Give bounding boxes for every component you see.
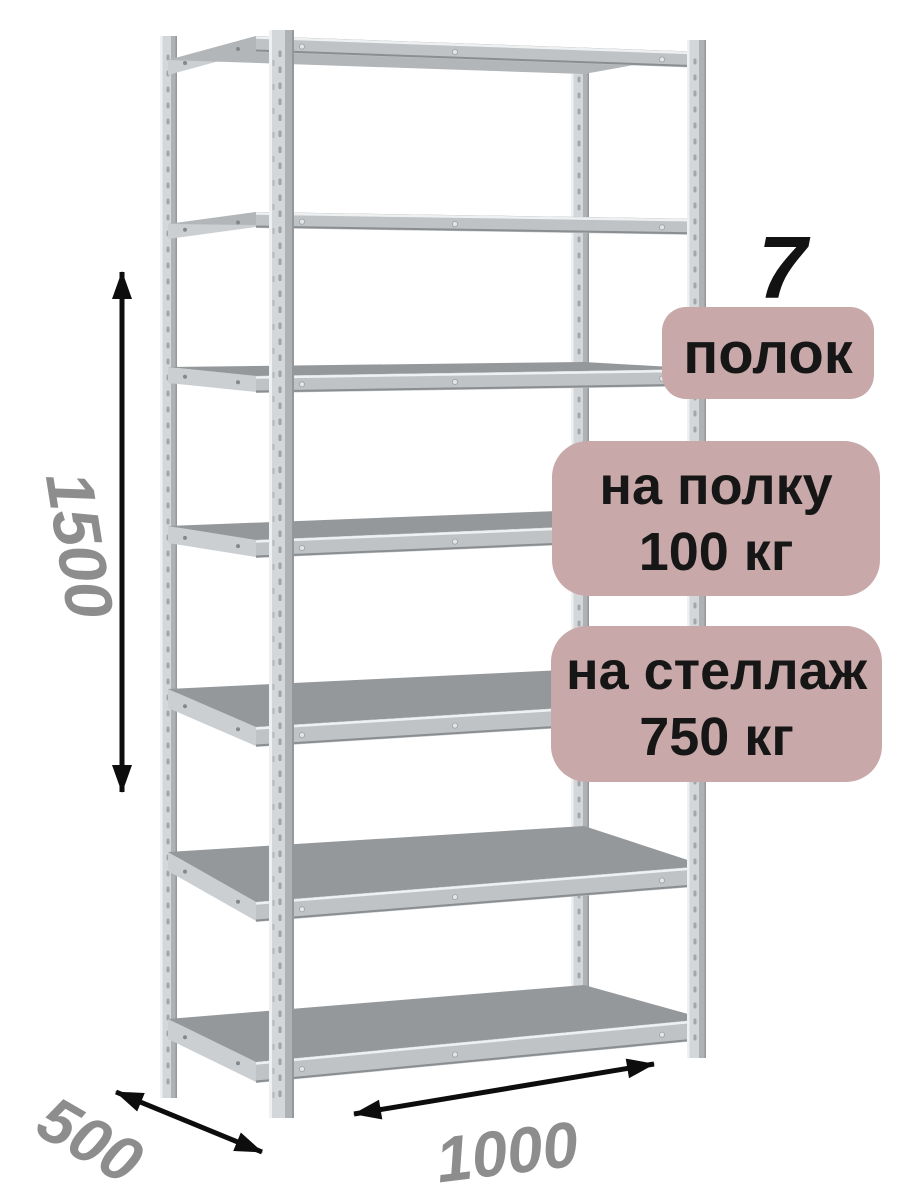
per-rack-load-line1: на стеллаж xyxy=(566,638,867,704)
shelves-count-label: полок xyxy=(683,320,853,387)
per-rack-load-badge: на стеллаж 750 кг xyxy=(551,626,882,782)
shelves-count-number: 7 xyxy=(720,220,845,315)
per-shelf-load-badge: на полку 100 кг xyxy=(552,441,880,596)
per-rack-load-line2: 750 кг xyxy=(639,704,794,770)
rack-shelf xyxy=(168,212,706,239)
per-shelf-load-line1: на полку xyxy=(599,453,832,519)
rack-post-front-left xyxy=(269,30,294,1118)
product-image: 7 полок на полку 100 кг на стеллаж 750 к… xyxy=(0,0,900,1200)
shelves-count-badge: полок xyxy=(662,307,874,399)
shelving-rack-illustration xyxy=(0,0,900,1200)
rack-shelf xyxy=(168,362,706,393)
per-shelf-load-line2: 100 кг xyxy=(639,519,794,585)
rack-shelf xyxy=(168,36,706,75)
rack-post-back-left xyxy=(160,36,177,1098)
rack-shelf xyxy=(168,826,706,922)
